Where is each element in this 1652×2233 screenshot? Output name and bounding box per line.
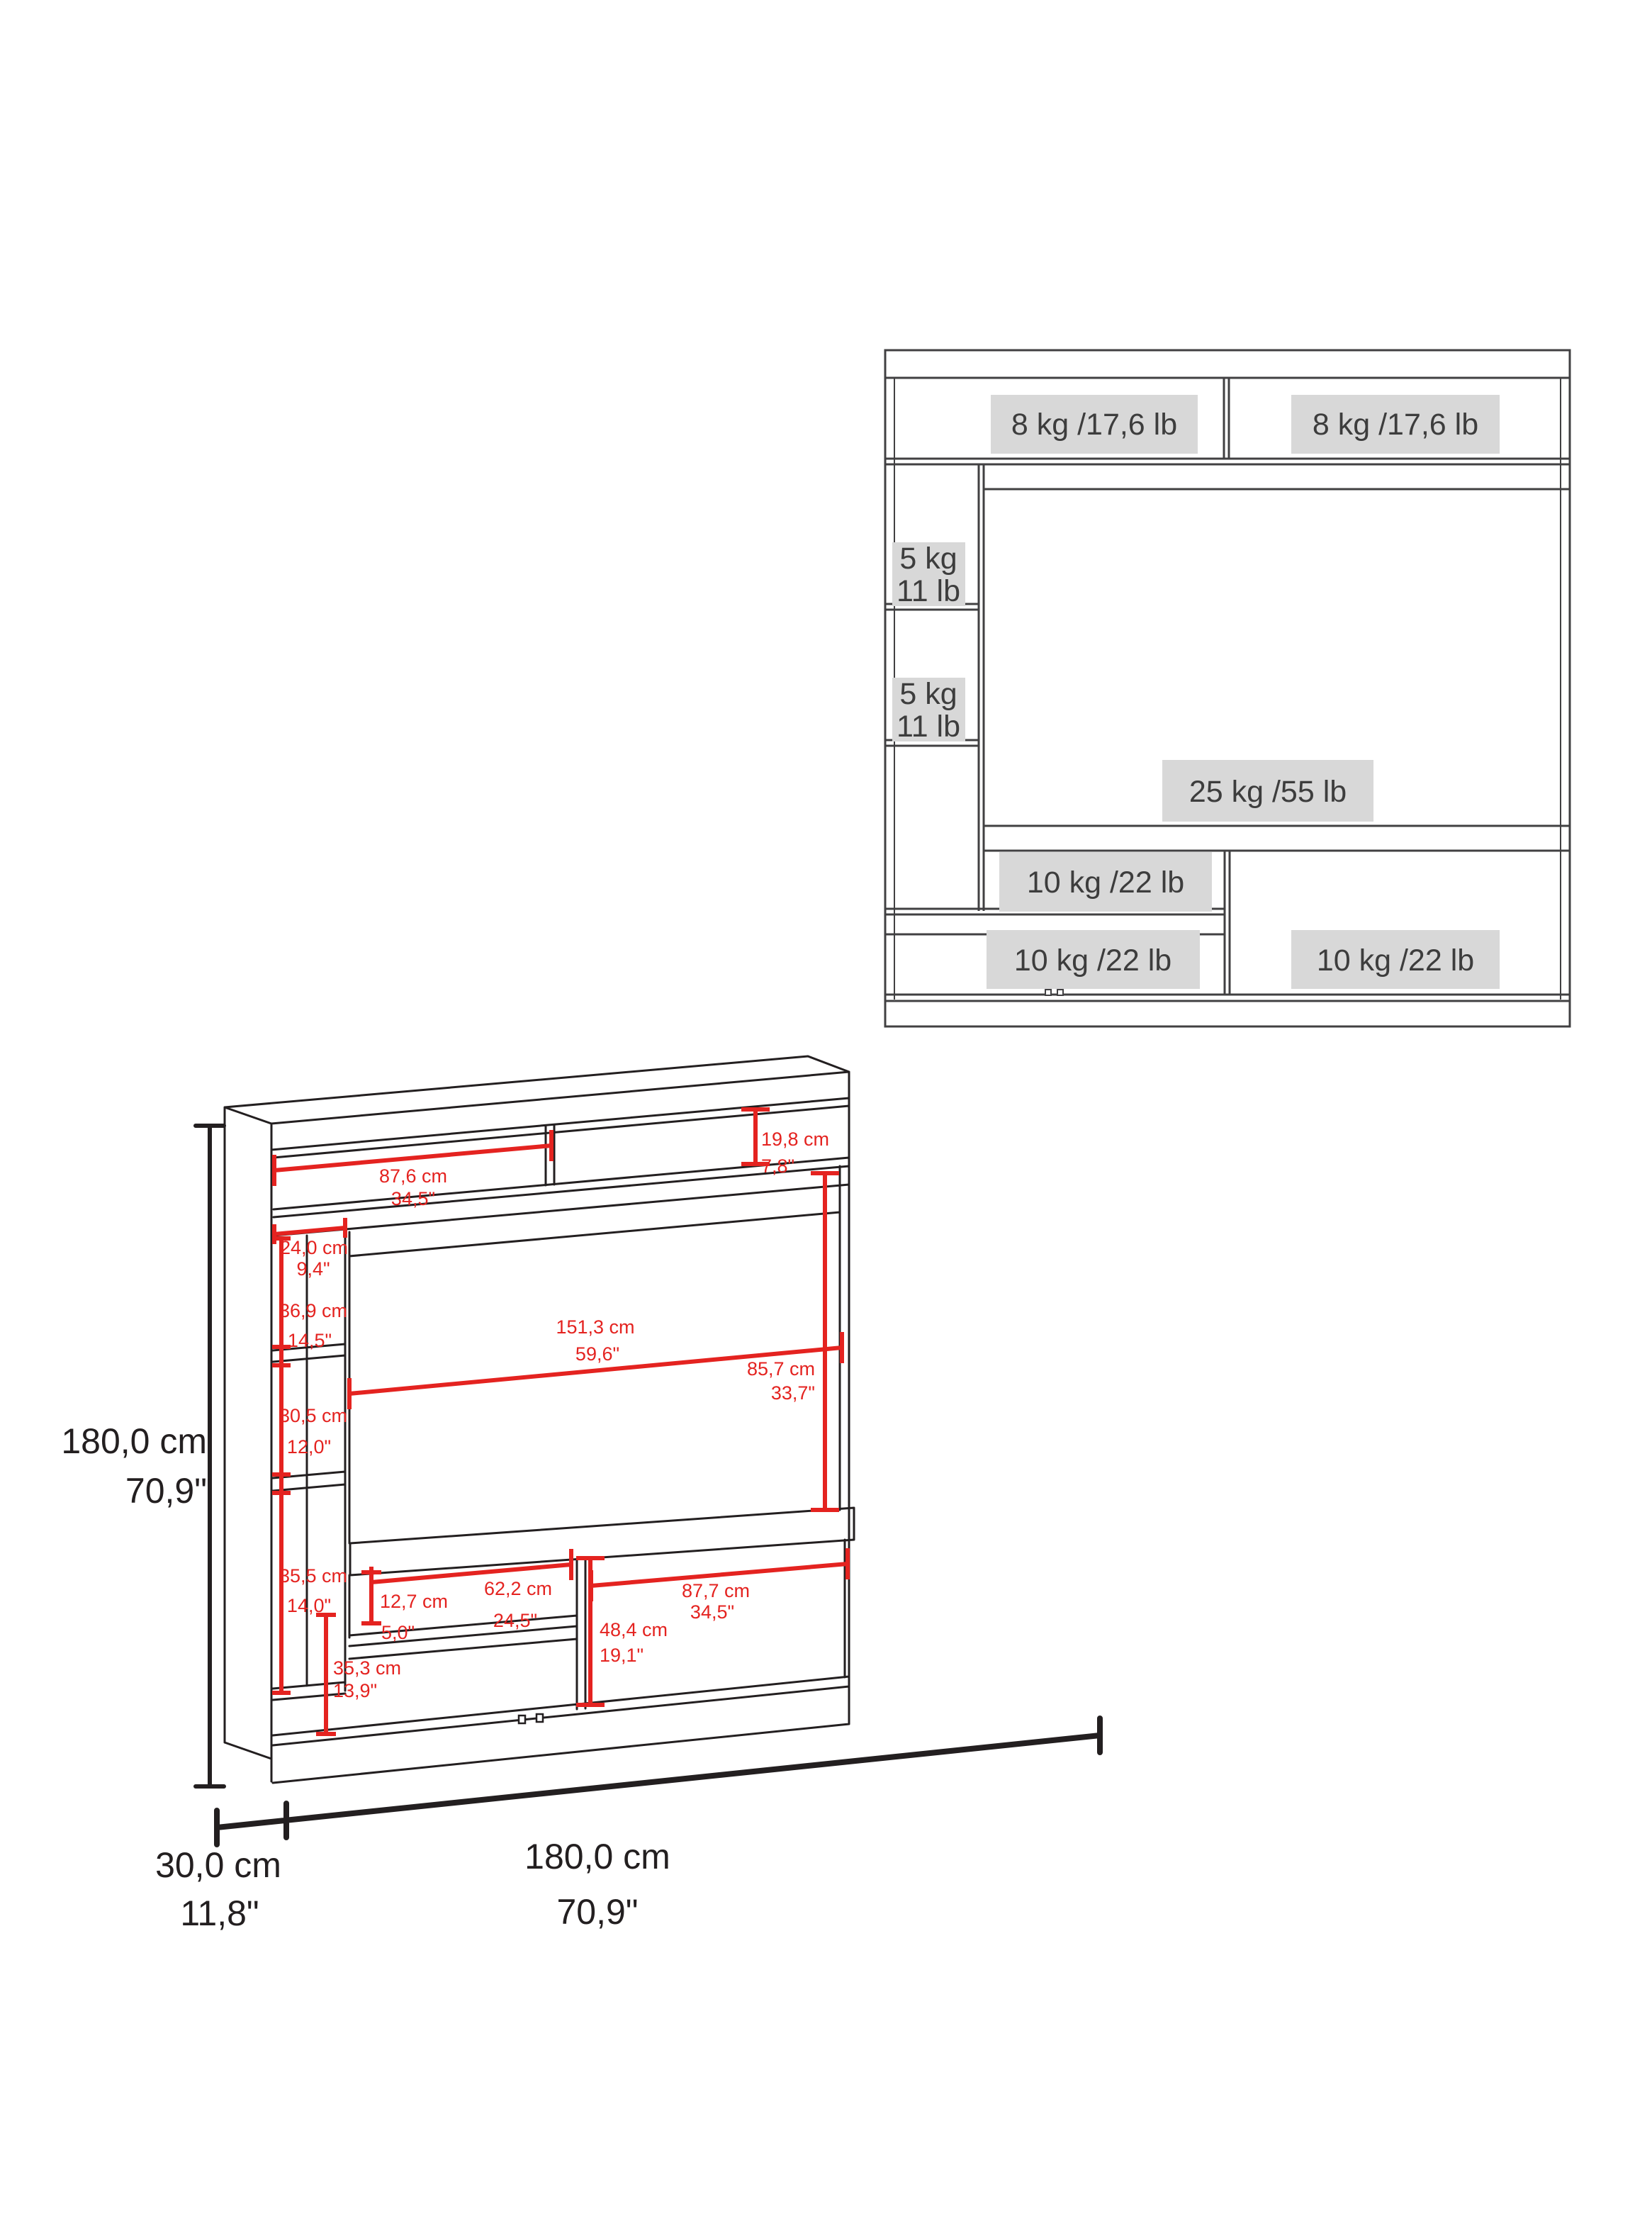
dim-top-shelf-in: 34,5"	[391, 1188, 435, 1209]
dim-cubby-mid-cm: 30,5 cm	[279, 1405, 347, 1426]
dim-right-comp-height-cm: 48,4 cm	[600, 1619, 668, 1640]
dim-column-width-cm: 24,0 cm	[280, 1237, 348, 1258]
cabinet-walls	[885, 378, 1570, 1001]
dim-tv-height-in: 33,7"	[771, 1382, 815, 1404]
dimension-diagram: 87,6 cm 34,5" 19,8 cm 7,8" 24,0 cm 9,4" …	[61, 1056, 1100, 1933]
page-canvas: 8 kg /17,6 lb 8 kg /17,6 lb 5 kg 11 lb 5…	[0, 0, 1652, 2233]
weight-bottom-right-label: 10 kg /22 lb	[1317, 944, 1474, 978]
weight-side1-kg-label: 5 kg	[899, 542, 957, 576]
cabinet-inner-walls	[894, 378, 1561, 1000]
dim-tv-height-cm: 85,7 cm	[747, 1358, 815, 1379]
dim-right-comp-width-cm: 87,7 cm	[682, 1580, 750, 1601]
dim-line-tv-height	[811, 1173, 839, 1510]
dim-niche-height-cm: 12,7 cm	[380, 1591, 448, 1612]
dim-top-right-cm: 19,8 cm	[761, 1129, 829, 1150]
dim-door-height-cm: 35,3 cm	[333, 1657, 401, 1679]
dim-cubby-bottom-cm: 35,5 cm	[279, 1565, 347, 1586]
weight-top-right-label: 8 kg /17,6 lb	[1313, 408, 1478, 442]
dim-top-shelf-cm: 87,6 cm	[379, 1165, 447, 1187]
weight-side2-lb-label: 11 lb	[897, 710, 960, 744]
dim-cubby-top-in: 14,5"	[288, 1330, 332, 1351]
furniture-diagram-svg: 8 kg /17,6 lb 8 kg /17,6 lb 5 kg 11 lb 5…	[0, 0, 1652, 2233]
dim-niche-width-cm: 62,2 cm	[484, 1578, 552, 1599]
dim-cubby-bottom-in: 14,0"	[287, 1595, 331, 1616]
overall-width-cm: 180,0 cm	[524, 1837, 670, 1876]
dim-column-width-in: 9,4"	[296, 1258, 330, 1280]
weight-side2-kg-label: 5 kg	[899, 677, 957, 711]
dim-cubby-mid-in: 12,0"	[287, 1436, 331, 1457]
dim-niche-height-in: 5,0"	[381, 1622, 415, 1643]
overall-depth-cm: 30,0 cm	[155, 1845, 281, 1885]
dim-top-right-in: 7,8"	[761, 1155, 794, 1177]
dim-door-height-in: 13,9"	[333, 1680, 377, 1701]
dim-right-comp-width-in: 34,5"	[690, 1601, 734, 1623]
weight-top-left-label: 8 kg /17,6 lb	[1011, 408, 1177, 442]
weight-niche-label: 10 kg /22 lb	[1027, 866, 1184, 900]
dim-cubby-top-cm: 36,9 cm	[279, 1300, 347, 1321]
overall-depth-in: 11,8"	[180, 1893, 259, 1933]
door-knob-icon	[1057, 990, 1063, 995]
weight-side1-lb-label: 11 lb	[897, 574, 960, 608]
weight-tv-label: 25 kg /55 lb	[1189, 775, 1347, 809]
door-knob-icon	[1045, 990, 1051, 995]
overall-height-cm: 180,0 cm	[61, 1421, 207, 1461]
dim-tv-width-cm: 151,3 cm	[556, 1316, 634, 1338]
dim-tv-width-in: 59,6"	[575, 1343, 619, 1365]
overall-height-in: 70,9"	[125, 1471, 207, 1511]
dim-right-comp-height-in: 19,1"	[600, 1645, 644, 1666]
overall-width-in: 70,9"	[556, 1892, 638, 1932]
door-knob-icon	[536, 1714, 543, 1722]
weight-capacity-diagram: 8 kg /17,6 lb 8 kg /17,6 lb 5 kg 11 lb 5…	[885, 350, 1570, 1026]
door-knob-icon	[519, 1716, 525, 1723]
dim-niche-width-in: 24,5"	[493, 1610, 537, 1631]
weight-bottom-left-label: 10 kg /22 lb	[1014, 944, 1171, 978]
